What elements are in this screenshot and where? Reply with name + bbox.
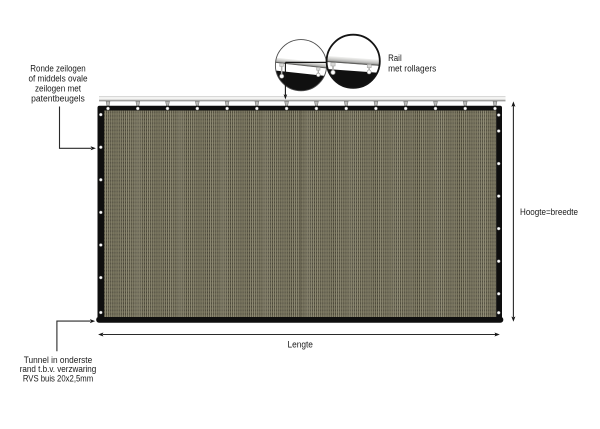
svg-text:Rail: Rail	[388, 53, 402, 63]
svg-text:of middels ovale: of middels ovale	[28, 74, 87, 84]
svg-text:patentbeugels: patentbeugels	[31, 93, 85, 103]
svg-text:met rollagers: met rollagers	[388, 63, 437, 73]
svg-text:Lengte: Lengte	[287, 339, 313, 349]
svg-text:zeilogen met: zeilogen met	[35, 84, 82, 94]
svg-text:RVS buis 20x2,5mm: RVS buis 20x2,5mm	[23, 374, 93, 384]
svg-text:Hoogte=breedte: Hoogte=breedte	[520, 207, 578, 217]
svg-text:Ronde zeilogen: Ronde zeilogen	[30, 64, 85, 74]
